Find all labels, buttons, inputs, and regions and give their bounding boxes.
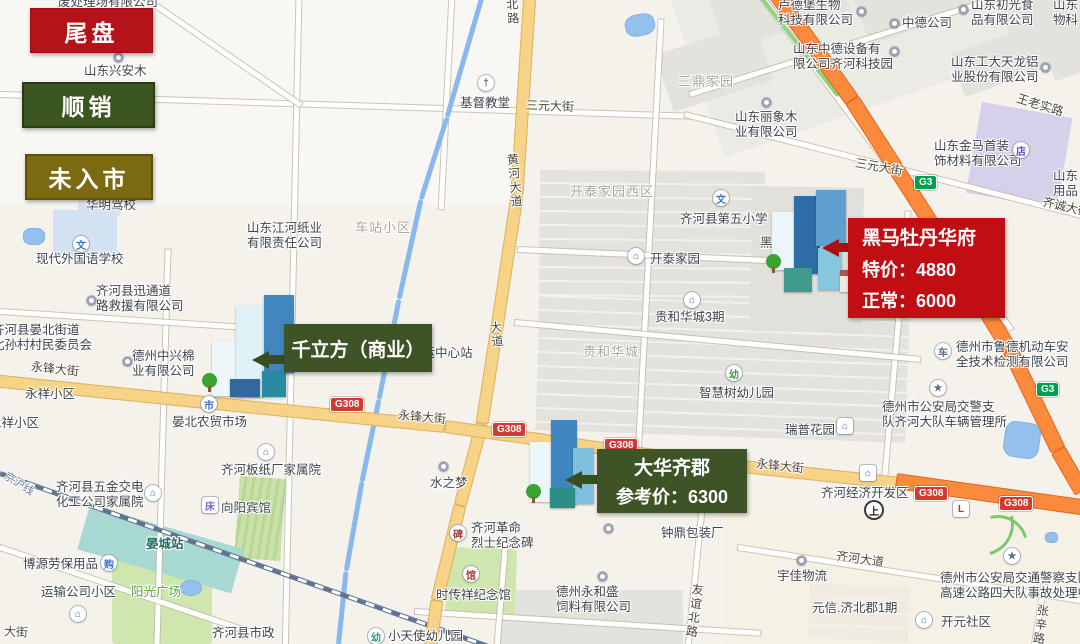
tree-icon	[766, 254, 781, 269]
map-label: 卢德堡生物 科技有限公司	[778, 0, 853, 28]
callout-title: 千立方（商业）	[284, 335, 432, 362]
map-label: 山东 用品	[1053, 169, 1078, 199]
market-icon: 市	[201, 396, 217, 412]
map-label: 齐河县市政	[212, 626, 275, 641]
map-label: 黄河大道	[505, 152, 524, 209]
poi-dot	[797, 556, 806, 565]
map-label: 基督教堂	[460, 96, 510, 111]
callout-price-line: 参考价：6300	[597, 483, 747, 509]
map-label: 开泰家园	[650, 252, 700, 267]
map-label: 水之梦	[430, 476, 468, 491]
legend-item-shunxiao: 顺销	[22, 82, 155, 128]
callout-title: 大华齐郡	[597, 453, 747, 480]
callout-arrow-stem	[266, 355, 286, 364]
school-icon: 文	[73, 236, 89, 252]
kindergarten-icon: 幼	[368, 628, 384, 644]
map-label: 永锋大街	[397, 408, 446, 427]
road-badge-G308: G308	[492, 422, 526, 437]
map-label: 王老实路	[1015, 91, 1065, 119]
house-icon: ⌂	[258, 444, 274, 460]
shop-icon: 店	[1013, 142, 1029, 158]
map-label: 大街	[4, 624, 29, 640]
map-label: 博源劳保用品	[23, 557, 98, 572]
map-label: 晏城站	[146, 537, 184, 552]
house-icon: ⌂	[145, 485, 161, 501]
star-icon: ★	[930, 380, 946, 396]
poi-dot	[1041, 63, 1050, 72]
callout-title: 黑马牡丹华府	[848, 223, 1005, 250]
legend-label: 未入市	[49, 160, 130, 194]
poi-dot	[890, 19, 899, 28]
map-label: 齐河经济开发区	[821, 486, 909, 501]
poi-dot	[959, 5, 968, 14]
school-icon: 文	[713, 190, 729, 206]
map-label: 三元大街	[854, 156, 904, 179]
tree-icon	[526, 484, 541, 499]
map-label: 山东兴安木	[84, 64, 147, 79]
road-badge-G3: G3	[914, 175, 937, 190]
map-label: 山东中德设备有 限公司齐河科技园	[793, 42, 893, 72]
map-label: 开元社区	[941, 615, 991, 630]
map-label: 德州中兴棉 业有限公司	[132, 349, 195, 379]
map-label: 山东金马首装 饰材料有限公司	[934, 139, 1022, 169]
callout-arrow-stem	[579, 475, 599, 484]
church-icon: †	[478, 75, 494, 91]
callout-price-line: 正常：6000	[848, 287, 1005, 313]
map-label: 车站小区	[355, 220, 411, 236]
labels-layer: 废处理场有限公司山东兴安木华明驾校基督教堂现代外国语学校山东江河纸业 有限责任公…	[0, 0, 1080, 644]
map-label: 齐河大道	[835, 549, 885, 570]
highway-entrance-icon: 上	[866, 502, 882, 518]
house-icon: ⌂	[70, 606, 86, 622]
museum-icon: 馆	[463, 566, 479, 582]
map-label: 三元大街	[526, 98, 574, 114]
poi-dot	[87, 296, 96, 305]
callout-dahua: 大华齐郡 参考价：6300	[597, 449, 747, 513]
poi-dot	[762, 98, 771, 107]
house-icon: ⌂	[684, 292, 700, 308]
map-label: 山东 物科	[1053, 0, 1078, 28]
map-label: 元信.济北郡1期	[812, 601, 897, 616]
poi-dot	[604, 524, 613, 533]
map-label: 智慧树幼儿园	[699, 386, 774, 401]
poi-dot	[598, 572, 607, 581]
building-icon: ⌂	[837, 418, 853, 434]
callout-qianlifang: 千立方（商业）	[284, 324, 432, 372]
map-label: 齐河县晏北街道 北孙村村民委员会	[0, 323, 92, 353]
legend-label: 尾盘	[65, 14, 119, 48]
map-label: 华明驾校	[86, 198, 136, 213]
map-label: 晏北农贸市场	[172, 415, 247, 430]
map-label: 钟鼎包装厂	[661, 526, 724, 541]
map-label: 齐河县五金交电 化工公司家属院	[56, 480, 144, 510]
map-label: 山东工大天龙铝 业股份有限公司	[951, 55, 1039, 85]
map-label: 永锋大街	[755, 457, 804, 476]
map-label: 德州永和盛 饲料有限公司	[556, 585, 631, 615]
map-label: 张辛路	[1030, 603, 1050, 644]
buildings-dahua	[526, 420, 601, 512]
map-label: 永祥小区	[25, 387, 75, 402]
map-label: 齐河县迅通道 路救援有限公司	[96, 284, 184, 314]
map-label: 永祥小区	[0, 416, 39, 431]
poi-dot	[123, 357, 132, 366]
map-label: 运输公司小区	[41, 585, 116, 600]
map-label: 大道	[488, 320, 505, 349]
house-icon: ⌂	[628, 248, 644, 264]
map-label: 永锋大街	[30, 360, 79, 379]
monument-icon: 碑	[450, 525, 466, 541]
legend-label: 顺销	[62, 88, 116, 122]
poi-dot	[114, 53, 123, 62]
poi-dot	[890, 47, 899, 56]
map-label: 贵和华城	[583, 344, 639, 360]
map-label: 中德公司	[902, 16, 952, 31]
star-icon: ★	[1004, 548, 1020, 564]
map-label: 山东江河纸业 有限责任公司	[247, 221, 322, 251]
map-label: 山东初光食 品有限公司	[971, 0, 1034, 28]
map-label: 德州市鲁德机动车安 全技术检测有限公司	[956, 340, 1069, 370]
hotel-icon: 床	[202, 497, 218, 513]
building-icon: ⌂	[860, 465, 876, 481]
map-label: 阳光广场	[131, 585, 181, 600]
legend-item-weirushi: 未入市	[25, 154, 153, 200]
house-icon: ⌂	[916, 612, 932, 628]
map-label: 现代外国语学校	[36, 252, 124, 267]
map-label: 向阳宾馆	[221, 501, 271, 516]
car-icon: 车	[935, 343, 951, 359]
map-label: 德州市公安局交通警察支队 高速公路四大队事故处理中	[940, 571, 1080, 601]
poi-dot	[857, 7, 866, 16]
map-label: 齐河板纸厂家属院	[221, 463, 321, 478]
map-label: 开泰家园西区	[570, 184, 654, 200]
legend-item-weipan: 尾盘	[30, 8, 153, 53]
map-label: 瑞普花园	[785, 423, 835, 438]
cart-icon: 购	[101, 555, 117, 571]
road-badge-G308: G308	[914, 486, 948, 501]
poi-dot	[439, 462, 448, 471]
map-canvas[interactable]: 废处理场有限公司山东兴安木华明驾校基督教堂现代外国语学校山东江河纸业 有限责任公…	[0, 0, 1080, 644]
kindergarten-icon: 幼	[726, 365, 742, 381]
map-label: 三鼎家园	[678, 74, 734, 90]
map-label: 齐河革命 烈士纪念碑	[471, 521, 534, 551]
map-label: 北路	[504, 0, 520, 26]
road-badge-G308: G308	[999, 496, 1033, 511]
road-badge-G3: G3	[1036, 382, 1059, 397]
map-label: 时传祥纪念馆	[436, 588, 511, 603]
callout-heima: 黑马牡丹华府 特价：4880 正常：6000	[848, 218, 1005, 318]
map-label: 山东丽象木 业有限公司	[735, 110, 798, 140]
map-label: 友谊北路	[683, 582, 705, 639]
driving-school-icon: L	[953, 501, 969, 517]
map-label: 京沪线	[1, 470, 36, 499]
map-label: 贵和华城3期	[655, 310, 724, 325]
tree-icon	[202, 373, 217, 388]
map-label: 德州市公安局交警支 队齐河大队车辆管理所	[882, 400, 1007, 430]
map-label: 齐河县第五小学	[680, 212, 768, 227]
map-label: 宇佳物流	[777, 569, 827, 584]
map-label: 小天使幼儿园	[388, 629, 463, 644]
callout-price-line: 特价：4880	[848, 256, 1005, 282]
road-badge-G308: G308	[330, 397, 364, 412]
